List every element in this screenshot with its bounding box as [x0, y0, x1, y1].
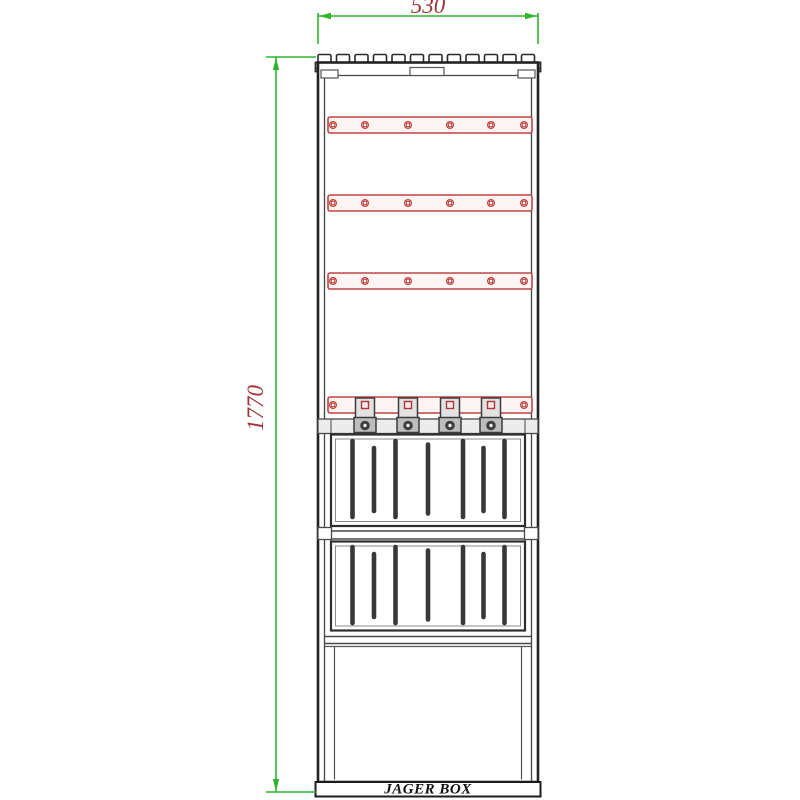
arrowhead-bottom	[273, 779, 279, 791]
height-dimension-label: 1770	[243, 385, 268, 432]
busbar-3	[328, 273, 532, 289]
busbar-2	[328, 195, 532, 211]
louver-panel-1	[331, 435, 525, 527]
arrowhead-top	[273, 58, 279, 70]
brand-plate: JAGER BOX	[316, 782, 541, 798]
cable-clamp	[397, 398, 419, 433]
cable-clamp	[480, 398, 502, 433]
cable-clamp	[439, 398, 461, 433]
busbar-1	[328, 117, 532, 133]
brand-label: JAGER BOX	[383, 782, 472, 798]
arrowhead-right	[525, 13, 537, 19]
cabinet: JAGER BOX	[316, 55, 541, 798]
cabinet-drawing: JAGER BOX 530 1770	[0, 0, 800, 800]
arrowhead-left	[319, 13, 331, 19]
cable-clamp	[354, 398, 376, 433]
clamp-rail	[318, 419, 538, 434]
louver-slats	[353, 547, 505, 623]
louver-panel-2	[331, 542, 525, 631]
height-dimension: 1770	[243, 57, 316, 792]
louver-slats	[353, 441, 505, 517]
width-dimension-label: 530	[411, 0, 446, 18]
width-dimension: 530	[318, 0, 538, 44]
drawing-canvas: JAGER BOX 530 1770	[0, 0, 800, 800]
